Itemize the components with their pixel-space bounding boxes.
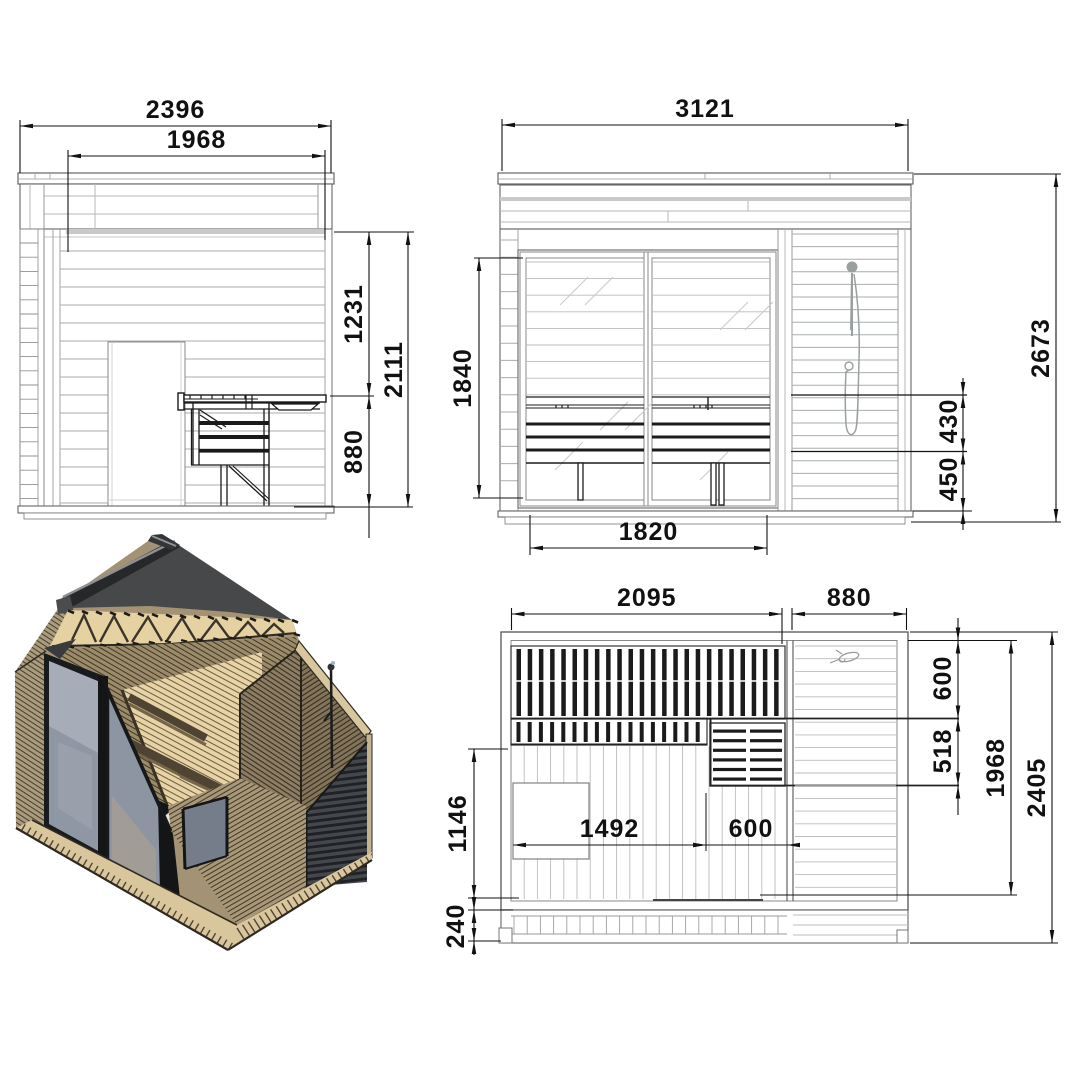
- svg-text:430: 430: [935, 399, 963, 444]
- svg-text:2095: 2095: [617, 584, 677, 612]
- svg-text:240: 240: [442, 904, 470, 949]
- svg-text:1968: 1968: [982, 738, 1010, 798]
- svg-text:2405: 2405: [1023, 758, 1051, 818]
- svg-text:880: 880: [827, 584, 872, 612]
- svg-text:450: 450: [935, 457, 963, 502]
- svg-text:2396: 2396: [146, 96, 206, 124]
- svg-text:600: 600: [729, 815, 774, 843]
- svg-text:600: 600: [929, 656, 957, 701]
- svg-text:880: 880: [340, 429, 368, 474]
- svg-text:2673: 2673: [1027, 318, 1055, 378]
- svg-text:1146: 1146: [444, 794, 472, 852]
- svg-text:3121: 3121: [675, 95, 735, 123]
- svg-text:1492: 1492: [580, 815, 640, 843]
- svg-text:1968: 1968: [167, 126, 227, 154]
- svg-text:518: 518: [929, 729, 957, 774]
- svg-text:1840: 1840: [449, 348, 477, 408]
- svg-text:2111: 2111: [380, 341, 408, 398]
- svg-text:1820: 1820: [619, 518, 679, 546]
- svg-text:1231: 1231: [340, 284, 368, 344]
